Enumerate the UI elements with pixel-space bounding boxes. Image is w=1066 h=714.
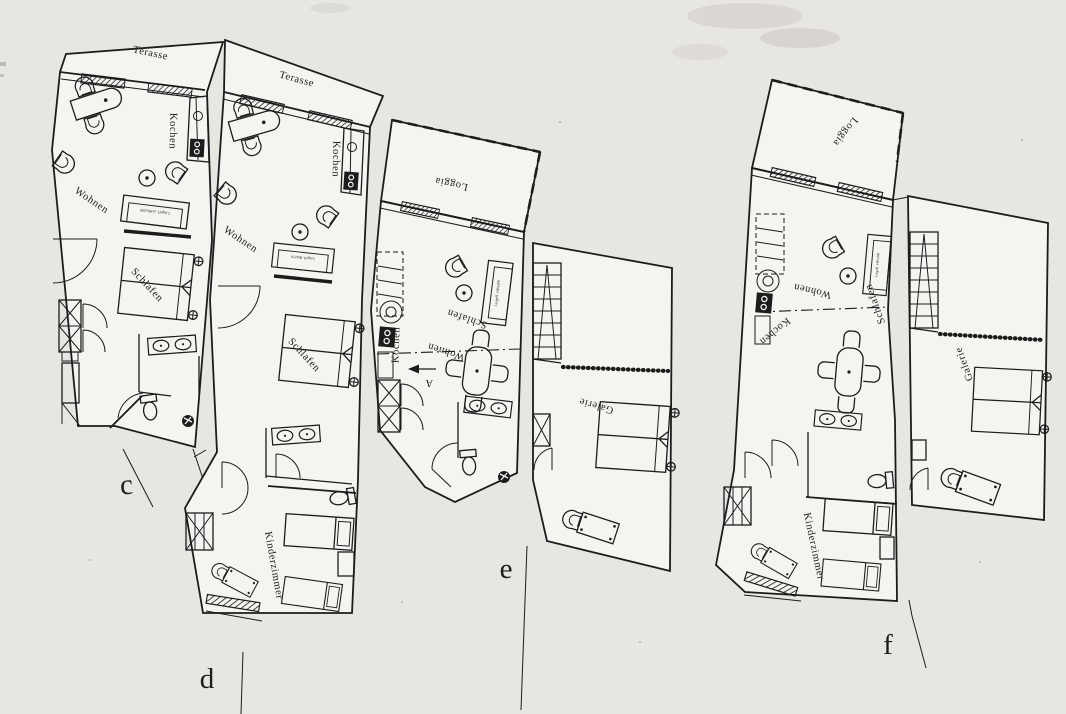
label-kochen-e: Kochen (390, 326, 402, 363)
stove-f (755, 292, 773, 313)
label-kochen-c: Kochen (167, 113, 179, 150)
floorplan-scan-page: Terasse Kochen Wohnen Liegefl. 2x90x200 … (0, 0, 1066, 714)
unit-letter-e: e (500, 553, 513, 585)
gallery-wing-f: Galerie (893, 196, 1052, 520)
gallery-wing-e: Galerie (533, 243, 679, 571)
plan-d: Terasse Kochen Wohnen Liegefl. 80x210 Sc… (185, 40, 383, 714)
leader-line-d (241, 652, 243, 714)
plan-c: Terasse Kochen Wohnen Liegefl. 2x90x200 … (52, 42, 223, 507)
unit-letter-d: d (200, 663, 215, 695)
floorplan-drawing: Terasse Kochen Wohnen Liegefl. 2x90x200 … (0, 0, 1066, 714)
plan-f: Loggia Kochen Wohnen Liegefl. 140x200 Sc… (716, 80, 1052, 668)
label-entry-a: A (424, 377, 433, 388)
unit-letter-c: c (119, 469, 134, 502)
unit-c-outline (52, 42, 223, 447)
plan-e: Loggia Kochen Liegefl. 140x200 Schlafen … (371, 120, 679, 710)
unit-letter-f: f (883, 629, 893, 661)
label-kochen-d: Kochen (330, 141, 342, 178)
leader-line-e (521, 546, 527, 710)
leader-lines-f (909, 600, 926, 668)
